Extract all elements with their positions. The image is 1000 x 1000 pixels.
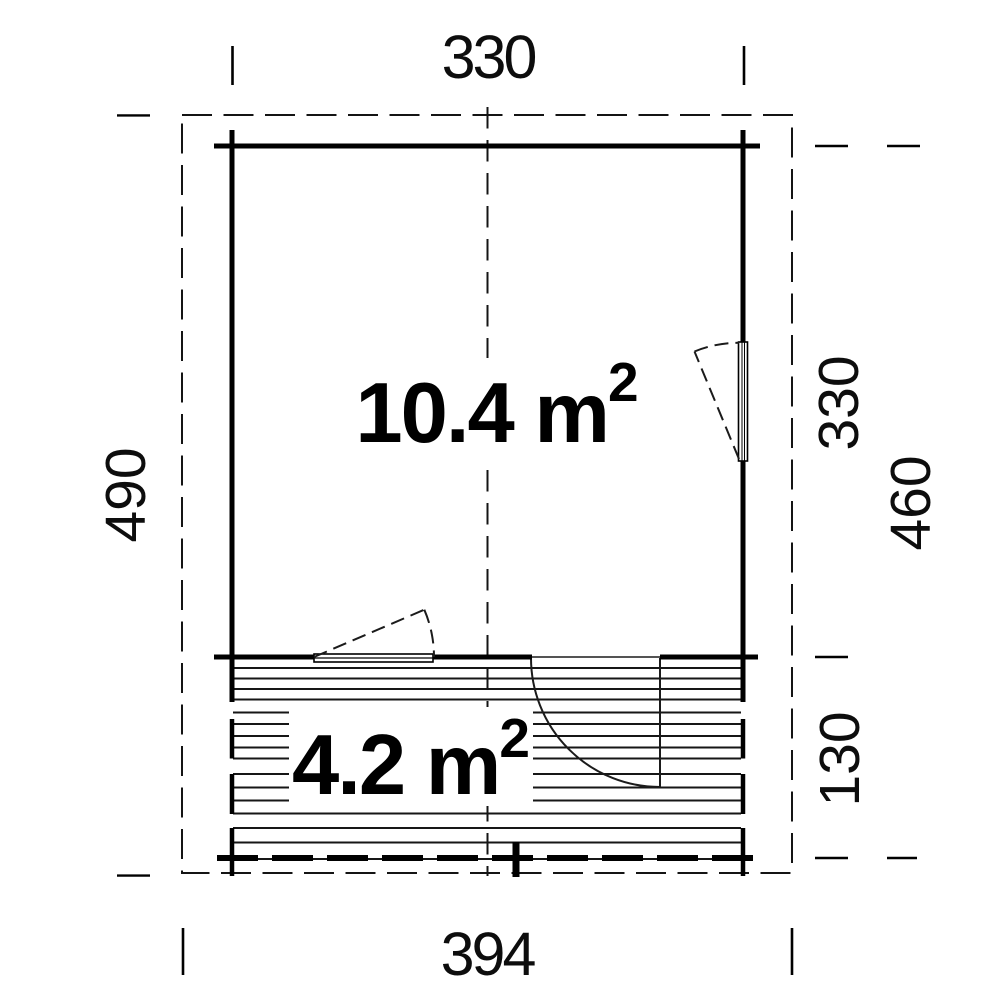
svg-text:330: 330 xyxy=(442,23,536,91)
svg-text:460: 460 xyxy=(879,455,943,550)
svg-text:4.2 m2: 4.2 m2 xyxy=(292,707,528,813)
svg-text:490: 490 xyxy=(94,447,158,542)
svg-text:330: 330 xyxy=(807,355,871,450)
svg-text:394: 394 xyxy=(441,920,536,988)
svg-text:130: 130 xyxy=(808,711,872,806)
svg-text:10.4 m2: 10.4 m2 xyxy=(355,351,637,461)
